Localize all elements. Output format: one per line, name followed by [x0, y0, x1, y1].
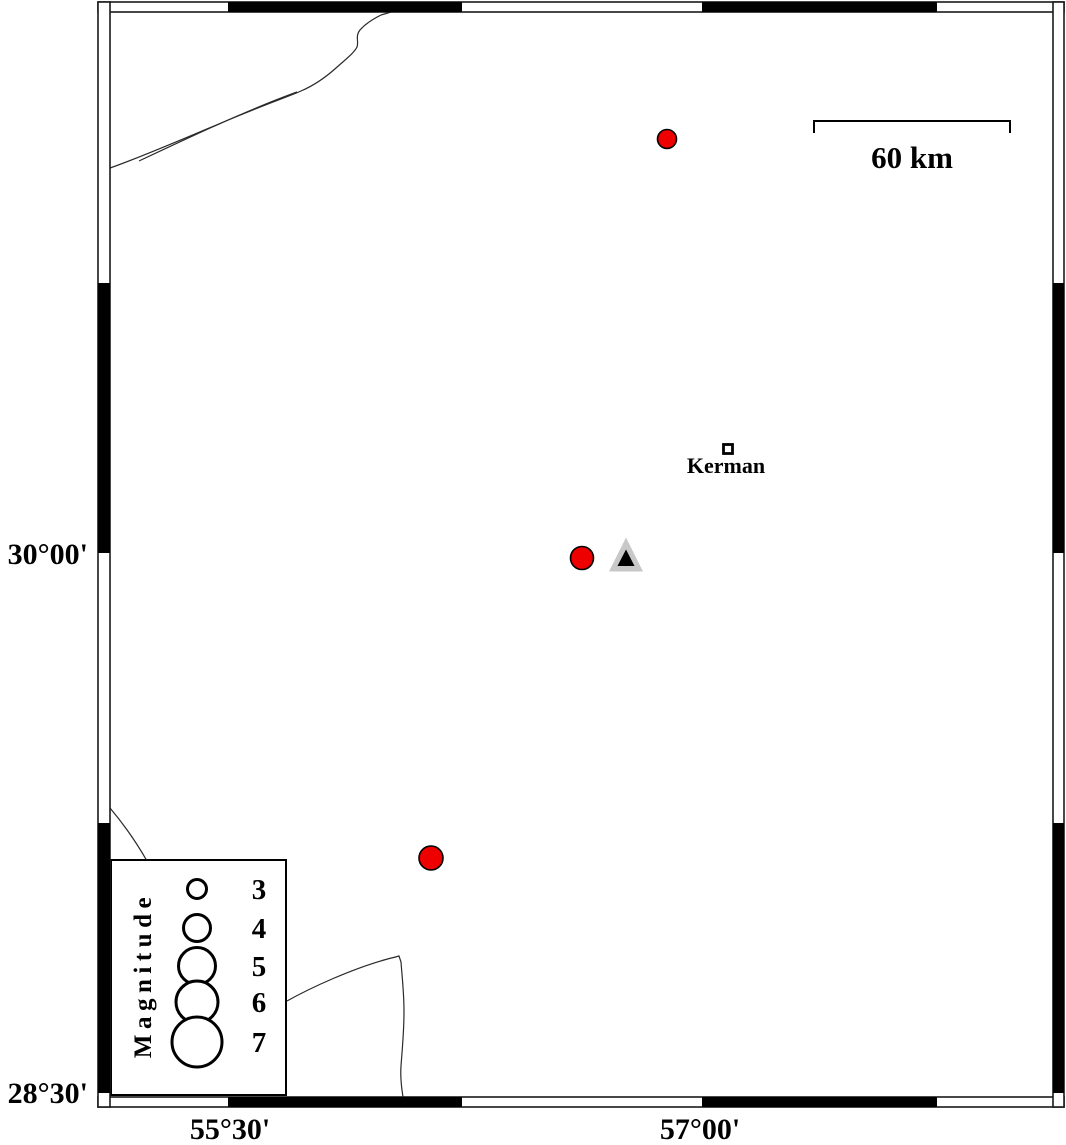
legend-magnitude-circle: [188, 880, 207, 899]
longitude-tick-label: 55°30': [190, 1113, 270, 1145]
legend-magnitude-label: 4: [252, 913, 267, 945]
legend-magnitude-label: 7: [252, 1027, 267, 1059]
frame-segment: [98, 283, 110, 553]
seismicity-map-figure: Magnitude 34567 60 km Kerman: [0, 0, 1066, 1145]
map-scale-bar: 60 km: [814, 121, 1010, 175]
frame-segment: [1053, 823, 1064, 1093]
frame-segment: [98, 823, 110, 1093]
frame-segment: [1053, 283, 1064, 553]
city-marker-kerman: Kerman: [687, 445, 765, 479]
legend-magnitude-label: 6: [252, 987, 267, 1019]
latitude-tick-label: 30°00': [8, 538, 88, 571]
earthquake-epicenter: [419, 846, 443, 870]
legend-magnitude-circle: [179, 948, 216, 985]
magnitude-legend: Magnitude 34567: [111, 860, 286, 1095]
legend-magnitude-label: 3: [252, 874, 267, 906]
earthquake-markers: [419, 130, 677, 871]
frame-segment: [228, 2, 462, 12]
legend-magnitude-label: 5: [252, 951, 267, 983]
coastline-northwest: [110, 12, 391, 168]
earthquake-epicenter: [571, 547, 594, 570]
scale-bar-line: [814, 121, 1010, 133]
station-marker: [609, 538, 643, 572]
city-label: Kerman: [687, 453, 765, 478]
longitude-tick-label: 57°00': [660, 1113, 740, 1145]
frame-segment: [228, 1097, 462, 1107]
legend-title: Magnitude: [130, 892, 157, 1058]
earthquake-epicenter: [658, 130, 677, 149]
coastline-south: [287, 956, 404, 1097]
frame-segment: [702, 1097, 937, 1107]
map-canvas: Magnitude 34567 60 km Kerman: [0, 0, 1066, 1145]
frame-segment: [702, 2, 937, 12]
legend-magnitude-circle: [184, 915, 211, 942]
scale-bar-label: 60 km: [871, 140, 953, 175]
latitude-tick-label: 28°30': [8, 1077, 88, 1110]
coastline-southwest-upper: [110, 808, 147, 861]
legend-magnitude-circle: [172, 1017, 222, 1067]
